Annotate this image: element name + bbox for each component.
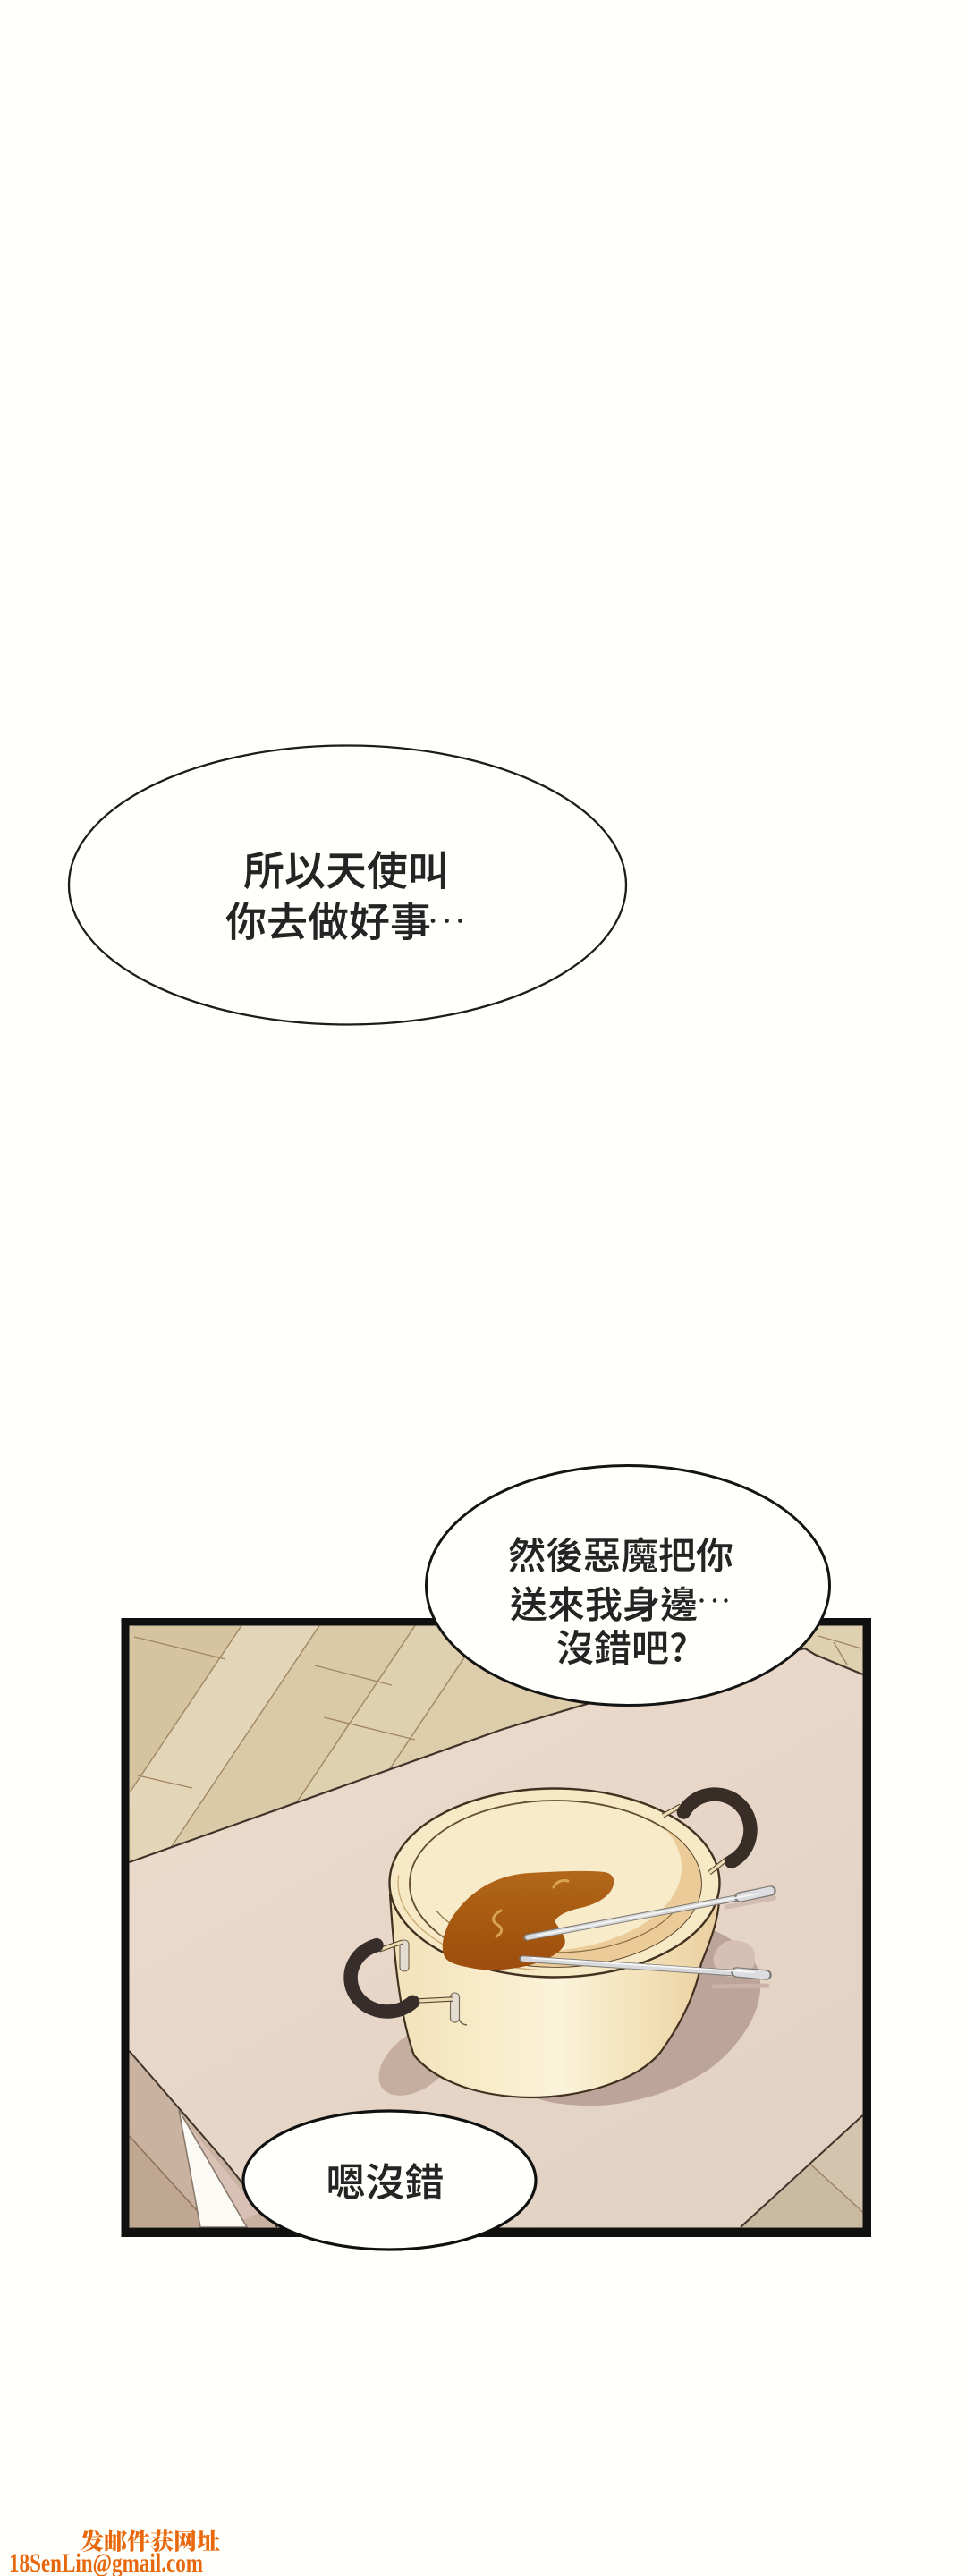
svg-text:18SenLin@gmail.com: 18SenLin@gmail.com [9,2548,203,2576]
